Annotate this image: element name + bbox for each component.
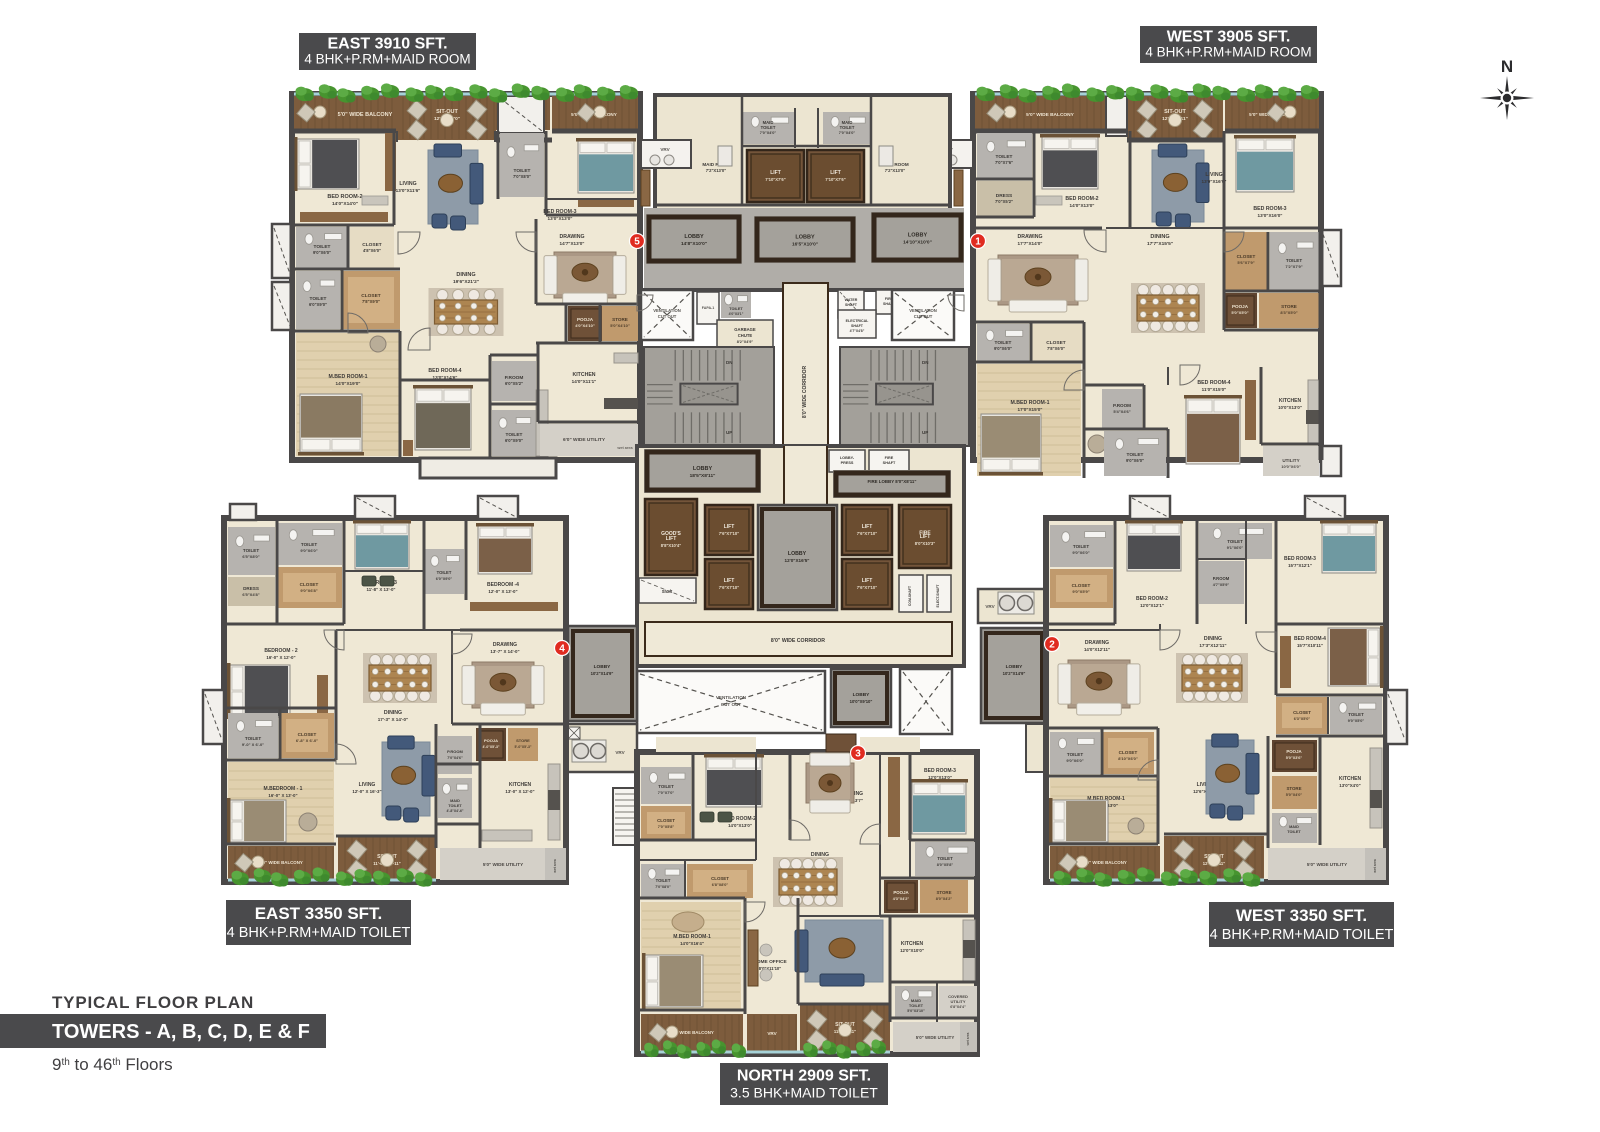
- svg-text:EAST 3350 SFT.: EAST 3350 SFT.: [255, 904, 383, 923]
- svg-text:9'0"X6'0": 9'0"X6'0": [300, 548, 317, 553]
- svg-text:TOILET: TOILET: [301, 542, 317, 547]
- svg-text:14'0"X13'0": 14'0"X13'0": [1070, 203, 1095, 208]
- svg-text:WEST 3350 SFT.: WEST 3350 SFT.: [1236, 906, 1367, 925]
- svg-text:14'0"X12'11": 14'0"X12'11": [1084, 647, 1110, 652]
- svg-text:9'0"X6'0": 9'0"X6'0": [994, 346, 1012, 351]
- svg-text:19'6"X21'2": 19'6"X21'2": [453, 279, 479, 285]
- svg-text:5'0" WIDE UTILITY: 5'0" WIDE UTILITY: [916, 1035, 955, 1040]
- svg-text:7'0"X5'8": 7'0"X5'8": [658, 825, 675, 829]
- svg-text:16'-0" X 13'-0": 16'-0" X 13'-0": [268, 793, 297, 798]
- svg-text:4: 4: [559, 643, 565, 654]
- svg-text:13'0"X16'0": 13'0"X16'0": [1258, 213, 1283, 218]
- svg-text:7'8"X6'0": 7'8"X6'0": [1047, 346, 1065, 351]
- svg-text:6'8"X4'4": 6'8"X4'4": [950, 1005, 966, 1009]
- svg-text:DRESS: DRESS: [243, 586, 259, 591]
- svg-text:BED ROOM-2: BED ROOM-2: [1065, 196, 1098, 202]
- svg-text:12'0"X10'0": 12'0"X10'0": [900, 948, 924, 953]
- svg-text:BED ROOM-2: BED ROOM-2: [327, 194, 362, 200]
- svg-text:DN: DN: [726, 360, 733, 365]
- svg-text:17'0"X15'0": 17'0"X15'0": [1018, 407, 1043, 412]
- svg-text:CUT OUT: CUT OUT: [721, 702, 742, 707]
- svg-text:5'0" WIDE UTILITY: 5'0" WIDE UTILITY: [483, 862, 523, 867]
- svg-text:5'0"X5'0": 5'0"X5'0": [1231, 310, 1248, 315]
- svg-text:12'-0" X 16'-3": 12'-0" X 16'-3": [352, 789, 381, 794]
- svg-text:4'3"X4'2": 4'3"X4'2": [893, 897, 910, 901]
- svg-text:TOILET: TOILET: [840, 125, 855, 130]
- svg-text:6'-8" X 6'-0": 6'-8" X 6'-0": [296, 738, 318, 743]
- svg-text:8'0" WIDE CORRIDOR: 8'0" WIDE CORRIDOR: [771, 638, 825, 644]
- svg-text:10'0"X13'0": 10'0"X13'0": [1278, 405, 1302, 410]
- svg-text:P.ROOM: P.ROOM: [1213, 576, 1230, 581]
- svg-text:LIFT: LIFT: [724, 578, 735, 584]
- svg-text:DRAWING: DRAWING: [493, 642, 517, 648]
- svg-text:CLOSET: CLOSET: [298, 732, 317, 737]
- svg-text:14'7"X13'0": 14'7"X13'0": [560, 241, 585, 246]
- svg-text:WATER: WATER: [845, 298, 858, 302]
- svg-text:18'5"X8'11": 18'5"X8'11": [690, 473, 716, 479]
- svg-text:5'0" WIDE BALCONY: 5'0" WIDE BALCONY: [259, 860, 303, 865]
- svg-text:13'0"X4'0": 13'0"X4'0": [1339, 783, 1360, 788]
- svg-text:8'3"X5'0": 8'3"X5'0": [1280, 310, 1297, 315]
- svg-text:SHAFT: SHAFT: [883, 461, 896, 465]
- svg-text:TOILET: TOILET: [1227, 539, 1243, 544]
- svg-text:15'7"X12'1": 15'7"X12'1": [1288, 563, 1312, 568]
- svg-text:TOILET: TOILET: [658, 784, 674, 789]
- svg-text:KITCHEN: KITCHEN: [1339, 776, 1362, 782]
- svg-text:BED ROOM-3: BED ROOM-3: [924, 768, 956, 774]
- svg-text:5: 5: [634, 236, 640, 247]
- svg-text:LIFT: LIFT: [862, 578, 873, 584]
- svg-text:LIVING: LIVING: [399, 181, 416, 187]
- svg-text:4'0"X3'1": 4'0"X3'1": [729, 312, 744, 316]
- svg-text:GARBAGE: GARBAGE: [734, 327, 756, 332]
- svg-text:11'0"X15'0": 11'0"X15'0": [1202, 387, 1227, 392]
- svg-text:10'0"X6'0": 10'0"X6'0": [1281, 464, 1301, 469]
- svg-text:5'0"X4'0": 5'0"X4'0": [1286, 793, 1303, 797]
- svg-text:7'0"X8'0": 7'0"X8'0": [655, 885, 671, 889]
- svg-text:UP: UP: [726, 430, 732, 435]
- svg-text:FIRE LOBBY 8'0"X8'11": FIRE LOBBY 8'0"X8'11": [868, 479, 917, 484]
- svg-text:8'0" WIDE CORRIDOR: 8'0" WIDE CORRIDOR: [802, 366, 808, 419]
- svg-text:CLOSET: CLOSET: [1119, 750, 1138, 755]
- svg-text:LIFT: LIFT: [724, 524, 735, 530]
- svg-text:BED ROOM-3: BED ROOM-3: [1253, 206, 1286, 212]
- svg-text:Shaft: Shaft: [662, 589, 673, 594]
- svg-text:7'0"X7'0": 7'0"X7'0": [658, 791, 675, 795]
- svg-text:CLOSET: CLOSET: [300, 582, 319, 587]
- svg-text:7'8"X9'0": 7'8"X9'0": [362, 299, 380, 304]
- svg-text:STORE: STORE: [516, 738, 530, 743]
- svg-text:wet area: wet area: [553, 859, 557, 874]
- svg-text:14'0"X14'0": 14'0"X14'0": [332, 201, 358, 207]
- svg-text:5'0" WIDE BALCONY: 5'0" WIDE BALCONY: [1026, 112, 1074, 118]
- svg-text:2: 2: [1049, 639, 1055, 650]
- svg-text:LOBBY: LOBBY: [853, 692, 871, 698]
- svg-text:4'-8"X4'-6": 4'-8"X4'-6": [447, 809, 464, 813]
- svg-text:M.BED ROOM-1: M.BED ROOM-1: [1011, 400, 1050, 406]
- svg-text:7'0"X4'0": 7'0"X4'0": [760, 131, 777, 135]
- svg-text:M.BED ROOM-1: M.BED ROOM-1: [673, 934, 711, 940]
- svg-text:17'-3" X 14'-0": 17'-3" X 14'-0": [378, 717, 409, 722]
- svg-text:7'6"X7'10": 7'6"X7'10": [857, 531, 877, 536]
- svg-text:BED ROOM-4: BED ROOM-4: [1294, 636, 1326, 642]
- svg-text:WEST 3905 SFT.: WEST 3905 SFT.: [1167, 29, 1291, 46]
- svg-text:POOJA: POOJA: [484, 738, 498, 743]
- svg-text:12'0"X16'5": 12'0"X16'5": [785, 558, 810, 563]
- svg-text:DRAWING: DRAWING: [1017, 234, 1042, 240]
- svg-text:12'-0" X 13'-0": 12'-0" X 13'-0": [488, 589, 517, 594]
- svg-text:10'2"X14'9": 10'2"X14'9": [1003, 671, 1026, 676]
- svg-text:CLOSET: CLOSET: [1293, 710, 1311, 715]
- svg-text:9'0"X5'0": 9'0"X5'0": [1348, 719, 1365, 723]
- svg-text:TOILET: TOILET: [1286, 258, 1302, 263]
- svg-text:STORE: STORE: [936, 890, 951, 895]
- svg-text:8'0"X10'3": 8'0"X10'3": [915, 541, 935, 546]
- svg-text:DRAWING: DRAWING: [1085, 640, 1109, 646]
- svg-text:SHAFT: SHAFT: [845, 303, 858, 307]
- svg-text:NORTH 2909 SFT.: NORTH 2909 SFT.: [737, 1068, 871, 1085]
- svg-text:5'0"X3'10": 5'0"X3'10": [907, 1009, 925, 1013]
- svg-text:KITCHEN: KITCHEN: [1279, 398, 1302, 404]
- svg-text:LIFT: LIFT: [920, 534, 931, 540]
- svg-text:VRV: VRV: [660, 147, 670, 152]
- svg-text:LIVING: LIVING: [1205, 172, 1222, 178]
- svg-text:6'3"X5'0": 6'3"X5'0": [1294, 717, 1311, 721]
- svg-text:FAPA-1: FAPA-1: [702, 306, 715, 310]
- svg-text:9'-0" X 6'-0": 9'-0" X 6'-0": [242, 742, 264, 747]
- svg-text:7'0"X4'0": 7'0"X4'0": [839, 131, 856, 135]
- svg-text:8'2"X4'9": 8'2"X4'9": [737, 340, 754, 344]
- svg-text:7'0"X8'0": 7'0"X8'0": [513, 174, 531, 179]
- svg-text:14'8"X10'0": 14'8"X10'0": [681, 241, 707, 247]
- svg-text:6'5"X4'8": 6'5"X4'8": [242, 592, 259, 597]
- svg-text:LOBBY: LOBBY: [693, 466, 713, 472]
- svg-text:7'10"X7'6": 7'10"X7'6": [765, 177, 785, 182]
- svg-text:VRV: VRV: [615, 750, 625, 755]
- svg-text:9'0"X5'9": 9'0"X5'9": [1072, 589, 1089, 594]
- svg-text:CLOSET: CLOSET: [1237, 254, 1256, 259]
- svg-text:TYPICAL FLOOR PLAN: TYPICAL FLOOR PLAN: [52, 993, 254, 1012]
- svg-text:TOILET: TOILET: [1067, 752, 1083, 757]
- svg-text:7'6"X7'10": 7'6"X7'10": [719, 585, 739, 590]
- svg-text:KITCHEN: KITCHEN: [572, 372, 595, 378]
- svg-text:BED ROOM-4: BED ROOM-4: [1197, 380, 1230, 386]
- svg-text:CLOSET: CLOSET: [711, 876, 729, 881]
- svg-text:N: N: [1501, 57, 1513, 76]
- svg-text:DRAWING: DRAWING: [559, 234, 584, 240]
- svg-text:KITCHEN: KITCHEN: [901, 941, 924, 947]
- svg-text:STORE: STORE: [1281, 304, 1297, 309]
- svg-text:10'2"X14'9": 10'2"X14'9": [591, 671, 614, 676]
- svg-text:EAST 3910 SFT.: EAST 3910 SFT.: [327, 36, 447, 53]
- svg-text:COM.SHAFT: COM.SHAFT: [908, 585, 912, 606]
- svg-text:14'10"X10'0": 14'10"X10'0": [903, 240, 932, 246]
- svg-text:4'7"X5'9": 4'7"X5'9": [1213, 583, 1230, 587]
- svg-text:5'0"X4'10": 5'0"X4'10": [610, 323, 630, 328]
- svg-text:BED ROOM-3: BED ROOM-3: [1284, 556, 1316, 562]
- svg-text:wet area: wet area: [1373, 859, 1377, 874]
- svg-text:7'0"X5'2": 7'0"X5'2": [995, 199, 1013, 204]
- svg-text:DN: DN: [922, 360, 929, 365]
- svg-text:5'0" WIDE UTILITY: 5'0" WIDE UTILITY: [1307, 862, 1347, 867]
- svg-text:wet area: wet area: [966, 1032, 970, 1046]
- svg-text:7'6"X7'10": 7'6"X7'10": [719, 531, 739, 536]
- svg-text:12'0"X12'1": 12'0"X12'1": [1140, 603, 1164, 608]
- svg-text:14'0"X13'0": 14'0"X13'0": [728, 823, 752, 828]
- svg-text:POOJA: POOJA: [577, 317, 594, 322]
- svg-text:TOILET: TOILET: [1348, 712, 1364, 717]
- svg-text:15'7"X10'11": 15'7"X10'11": [1297, 643, 1323, 648]
- svg-text:6'0" WIDE UTILITY: 6'0" WIDE UTILITY: [563, 437, 606, 443]
- svg-text:11'-8" X 13'-0": 11'-8" X 13'-0": [367, 587, 396, 592]
- svg-text:5'-0"X5'-3": 5'-0"X5'-3": [515, 745, 532, 749]
- svg-text:BED ROOM-4: BED ROOM-4: [428, 368, 461, 374]
- svg-text:TOILET: TOILET: [448, 804, 462, 808]
- svg-text:7'2"X7'9": 7'2"X7'9": [1285, 264, 1302, 269]
- svg-text:CHUTE: CHUTE: [738, 333, 753, 338]
- svg-text:7'0"X4'6": 7'0"X4'6": [447, 756, 463, 760]
- svg-text:4 BHK+P.RM+MAID TOILET: 4 BHK+P.RM+MAID TOILET: [227, 925, 411, 941]
- svg-text:5'4"X4'6": 5'4"X4'6": [1113, 409, 1130, 414]
- svg-text:BEDROOM - 2: BEDROOM - 2: [264, 648, 298, 654]
- svg-text:UP: UP: [922, 430, 928, 435]
- svg-text:VRV: VRV: [985, 604, 995, 609]
- svg-text:PRESS: PRESS: [841, 461, 854, 465]
- svg-text:5'0" WIDE BALCONY: 5'0" WIDE BALCONY: [338, 112, 393, 118]
- svg-text:4'8"X6'0": 4'8"X6'0": [363, 248, 381, 253]
- svg-text:13'-0" X 12'-0": 13'-0" X 12'-0": [505, 789, 534, 794]
- svg-text:POOJA: POOJA: [1286, 749, 1302, 754]
- svg-text:LOBBY-: LOBBY-: [840, 456, 855, 460]
- svg-text:UTILITY: UTILITY: [1282, 458, 1299, 463]
- svg-text:STORE: STORE: [612, 317, 628, 322]
- svg-text:16'-0" X 12'-0": 16'-0" X 12'-0": [266, 655, 295, 660]
- svg-text:TOILET: TOILET: [243, 548, 259, 553]
- svg-text:TOILET: TOILET: [909, 1003, 924, 1008]
- svg-text:13'0"X11'6": 13'0"X11'6": [396, 188, 421, 193]
- svg-text:ELECTRICAL: ELECTRICAL: [846, 319, 870, 323]
- svg-text:LIFT: LIFT: [830, 170, 841, 176]
- svg-text:VRV: VRV: [767, 1031, 777, 1036]
- svg-text:TOILET: TOILET: [937, 856, 953, 861]
- svg-text:3.5 BHK+MAID TOILET: 3.5 BHK+MAID TOILET: [730, 1084, 878, 1100]
- svg-text:9'0"X6'0": 9'0"X6'0": [1066, 758, 1083, 763]
- svg-text:5'0"X3'6": 5'0"X3'6": [1286, 756, 1303, 760]
- svg-text:TOILET: TOILET: [1287, 830, 1301, 834]
- svg-text:P.ROOM: P.ROOM: [447, 749, 463, 754]
- svg-text:TOILET: TOILET: [729, 307, 743, 311]
- svg-text:6'0"X9'0": 6'0"X9'0": [505, 438, 523, 443]
- svg-text:14'0"X16'4": 14'0"X16'4": [680, 941, 704, 946]
- svg-text:7'2"X13'0": 7'2"X13'0": [706, 168, 726, 173]
- svg-text:LIVING: LIVING: [359, 782, 376, 788]
- svg-text:TOILET: TOILET: [761, 125, 776, 130]
- svg-text:9'0"X6'0": 9'0"X6'0": [1072, 550, 1089, 555]
- svg-text:7'6"X7'10": 7'6"X7'10": [857, 585, 877, 590]
- svg-text:10'0"X9'10": 10'0"X9'10": [850, 699, 873, 704]
- svg-text:6'5"X8'0": 6'5"X8'0": [242, 554, 259, 559]
- svg-text:4 BHK+P.RM+MAID ROOM: 4 BHK+P.RM+MAID ROOM: [304, 51, 470, 66]
- svg-text:17'3"X12'11": 17'3"X12'11": [1199, 643, 1226, 648]
- svg-text:FIRE: FIRE: [885, 456, 894, 460]
- svg-text:BEDROOM -4: BEDROOM -4: [487, 582, 519, 588]
- svg-text:LOBBY: LOBBY: [594, 664, 612, 670]
- svg-text:9'1"X6'0": 9'1"X6'0": [1227, 546, 1244, 550]
- svg-text:8'10"X6'0": 8'10"X6'0": [1118, 756, 1138, 761]
- svg-text:17'7"X14'0": 17'7"X14'0": [1018, 241, 1043, 246]
- svg-text:6'0"X9'0": 6'0"X9'0": [436, 577, 453, 581]
- svg-text:DINING: DINING: [384, 710, 402, 716]
- svg-text:LOBBY: LOBBY: [795, 235, 815, 241]
- svg-text:CLOSET: CLOSET: [657, 818, 675, 823]
- svg-text:LIFT: LIFT: [666, 536, 677, 542]
- svg-text:LOBBY: LOBBY: [788, 551, 807, 557]
- svg-text:9'0"X6'8": 9'0"X6'8": [300, 588, 317, 593]
- svg-text:13'-7" X 14'-0": 13'-7" X 14'-0": [490, 649, 519, 654]
- svg-text:BED ROOM-2: BED ROOM-2: [1136, 596, 1168, 602]
- svg-text:9'0"X6'0": 9'0"X6'0": [313, 250, 331, 255]
- svg-text:5'6"X7'9": 5'6"X7'9": [1237, 260, 1254, 265]
- svg-text:13'0"X13'0": 13'0"X13'0": [548, 216, 573, 221]
- svg-text:DINING: DINING: [1150, 234, 1169, 240]
- svg-text:STORE: STORE: [1286, 786, 1301, 791]
- svg-text:14'0"X11'1": 14'0"X11'1": [572, 379, 597, 384]
- svg-text:TOILET: TOILET: [656, 878, 671, 883]
- svg-text:8'0"X5'8": 8'0"X5'8": [937, 863, 954, 867]
- svg-text:POOJA: POOJA: [1232, 304, 1249, 309]
- svg-text:P.ROOM: P.ROOM: [1113, 403, 1131, 408]
- svg-text:CLOSET: CLOSET: [1072, 583, 1091, 588]
- svg-text:8'8"X10'4": 8'8"X10'4": [661, 543, 681, 548]
- svg-text:5'0" WIDE BALCONY: 5'0" WIDE BALCONY: [1083, 860, 1127, 865]
- svg-text:LIFT: LIFT: [770, 170, 781, 176]
- svg-text:SHAFT: SHAFT: [851, 324, 864, 328]
- svg-text:M.BEDROOM - 1: M.BEDROOM - 1: [264, 786, 303, 792]
- svg-text:1: 1: [975, 236, 981, 247]
- svg-text:17'7"X15'5": 17'7"X15'5": [1147, 241, 1173, 247]
- svg-text:7'2"X13'0": 7'2"X13'0": [885, 168, 905, 173]
- svg-text:7'0"X7'6": 7'0"X7'6": [995, 160, 1013, 165]
- svg-text:VENTILATION: VENTILATION: [909, 308, 937, 313]
- svg-text:VENTILATION: VENTILATION: [716, 695, 747, 700]
- svg-text:16'5"X10'0": 16'5"X10'0": [792, 242, 818, 248]
- svg-text:TOWERS - A, B, C, D, E & F: TOWERS - A, B, C, D, E & F: [52, 1021, 310, 1043]
- svg-text:4'7"X4'8": 4'7"X4'8": [850, 329, 865, 333]
- svg-text:UTILITY: UTILITY: [950, 999, 965, 1004]
- svg-text:LIFT: LIFT: [862, 524, 873, 530]
- svg-text:KITCHEN: KITCHEN: [509, 782, 532, 788]
- svg-text:ELECT.SHAFT: ELECT.SHAFT: [936, 584, 940, 608]
- svg-text:14'0"X19'0": 14'0"X19'0": [336, 381, 361, 386]
- svg-text:TOILET: TOILET: [437, 570, 452, 575]
- svg-text:MAID: MAID: [1289, 825, 1299, 829]
- svg-text:4'-0"X5'-3": 4'-0"X5'-3": [483, 745, 500, 749]
- svg-text:4'0"X4'10": 4'0"X4'10": [575, 323, 595, 328]
- svg-text:TOILET: TOILET: [1073, 544, 1089, 549]
- svg-text:6'0"X9'0": 6'0"X9'0": [309, 302, 327, 307]
- svg-text:POOJA: POOJA: [893, 890, 909, 895]
- svg-text:LOBBY: LOBBY: [684, 234, 704, 240]
- svg-text:6'8"X8'0": 6'8"X8'0": [712, 883, 729, 887]
- svg-text:CUT OUT: CUT OUT: [914, 314, 933, 319]
- svg-text:TOILET: TOILET: [245, 736, 261, 741]
- svg-text:9th to 46th Floors: 9th to 46th Floors: [52, 1055, 173, 1074]
- svg-text:DINING: DINING: [456, 272, 475, 278]
- svg-text:MAID: MAID: [450, 799, 460, 803]
- svg-text:6'0"X5'2": 6'0"X5'2": [505, 381, 523, 386]
- svg-text:LOBBY: LOBBY: [908, 233, 928, 239]
- svg-text:4 BHK+P.RM+MAID TOILET: 4 BHK+P.RM+MAID TOILET: [1210, 927, 1394, 943]
- svg-text:DINING: DINING: [1204, 636, 1222, 642]
- svg-text:M.BED ROOM-1: M.BED ROOM-1: [329, 374, 368, 380]
- svg-text:VENTILATION: VENTILATION: [653, 308, 681, 313]
- svg-text:7'10"X7'6": 7'10"X7'6": [825, 177, 845, 182]
- svg-text:wet area: wet area: [616, 446, 633, 450]
- svg-text:CUT OUT: CUT OUT: [658, 314, 677, 319]
- svg-text:3: 3: [855, 748, 861, 759]
- svg-text:9'0"X6'0": 9'0"X6'0": [1126, 458, 1144, 463]
- svg-text:8'0"X4'2": 8'0"X4'2": [936, 897, 953, 901]
- svg-text:LOBBY: LOBBY: [1006, 664, 1024, 670]
- svg-text:4 BHK+P.RM+MAID ROOM: 4 BHK+P.RM+MAID ROOM: [1145, 44, 1311, 59]
